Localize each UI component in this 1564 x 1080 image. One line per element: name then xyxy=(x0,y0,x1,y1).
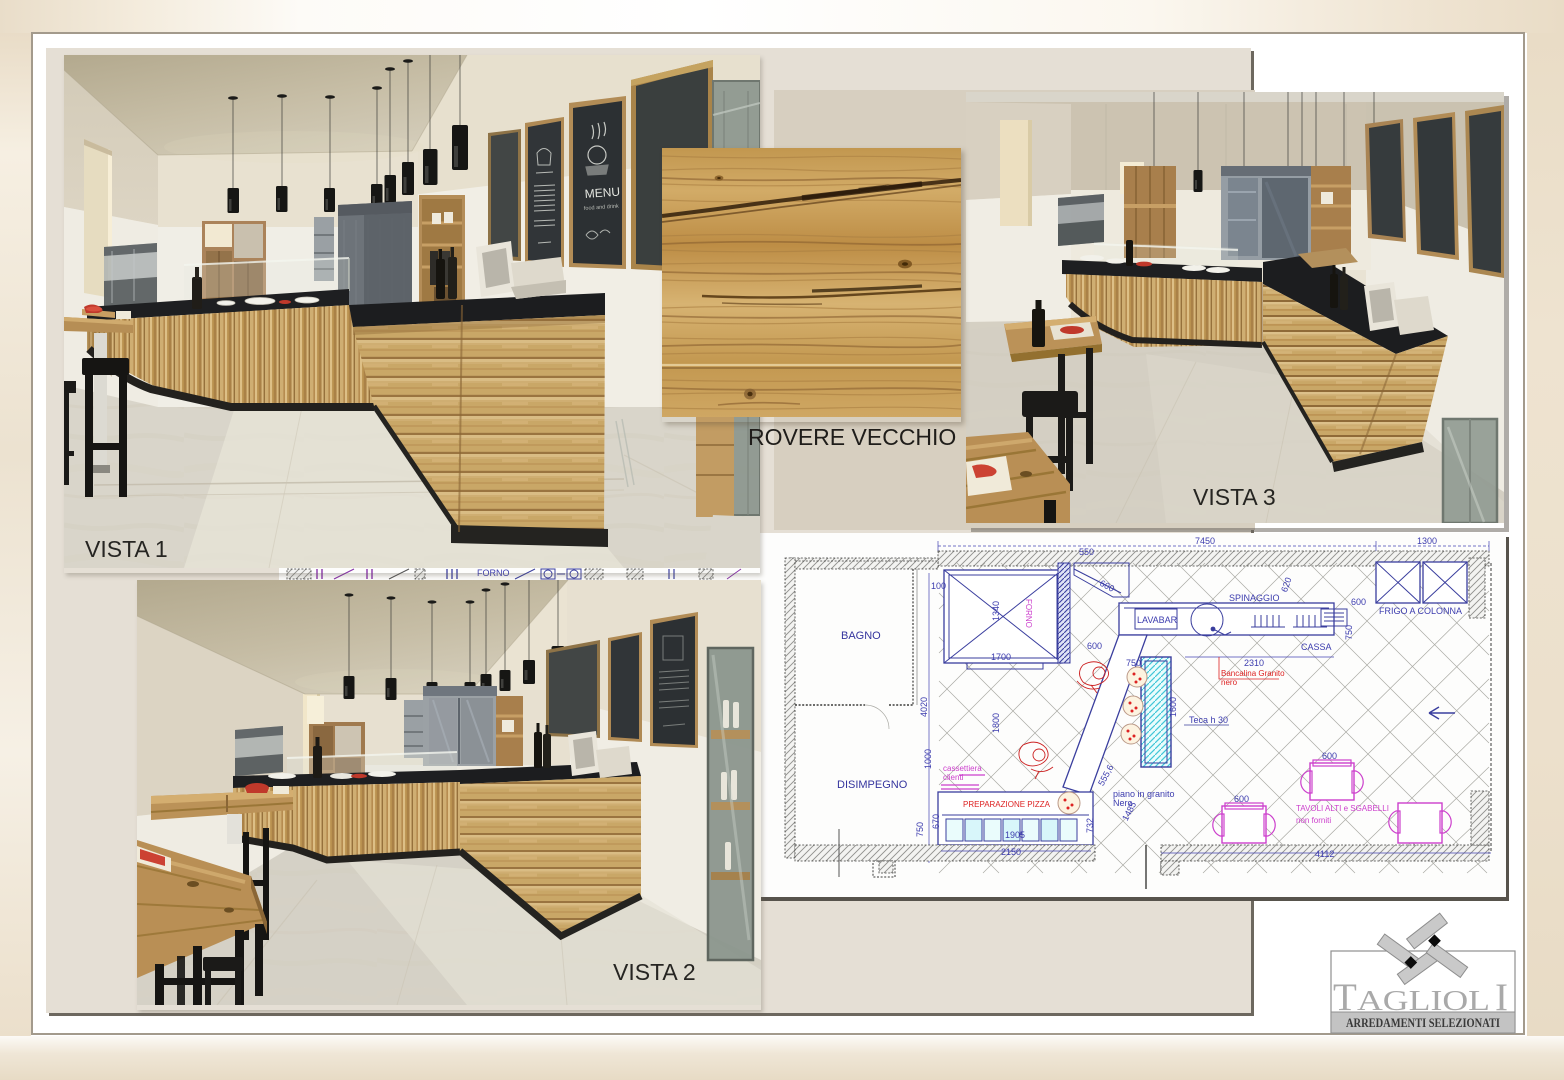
svg-text:clienti: clienti xyxy=(943,773,964,782)
svg-text:4020: 4020 xyxy=(919,697,929,717)
svg-text:750: 750 xyxy=(1344,625,1354,640)
svg-text:VISTA 2: VISTA 2 xyxy=(613,959,696,985)
svg-text:nero: nero xyxy=(1221,678,1238,687)
svg-text:750: 750 xyxy=(1126,658,1141,668)
svg-text:VISTA 1: VISTA 1 xyxy=(85,536,168,562)
svg-text:750: 750 xyxy=(915,822,925,837)
svg-text:600: 600 xyxy=(1322,751,1337,761)
svg-text:PREPARAZIONE PIZZA: PREPARAZIONE PIZZA xyxy=(963,800,1051,809)
svg-text:550: 550 xyxy=(1079,547,1094,557)
svg-text:1300: 1300 xyxy=(1417,536,1437,546)
svg-text:DISIMPEGNO: DISIMPEGNO xyxy=(837,779,908,791)
svg-text:1700: 1700 xyxy=(991,652,1011,662)
svg-text:732: 732 xyxy=(1085,818,1095,833)
svg-text:600: 600 xyxy=(1087,641,1102,651)
svg-text:600: 600 xyxy=(1234,794,1249,804)
svg-text:cassettiera: cassettiera xyxy=(943,764,982,773)
svg-text:LAVABAR: LAVABAR xyxy=(1137,615,1178,625)
svg-text:VISTA 3: VISTA 3 xyxy=(1193,484,1276,510)
svg-text:1600: 1600 xyxy=(1168,697,1178,717)
svg-text:7450: 7450 xyxy=(1195,536,1215,546)
svg-text:Bancalina Granito: Bancalina Granito xyxy=(1221,669,1285,678)
svg-text:non forniti: non forniti xyxy=(1296,816,1331,825)
svg-text:2310: 2310 xyxy=(1244,658,1264,668)
svg-text:Teca h 30: Teca h 30 xyxy=(1189,715,1228,725)
svg-text:600: 600 xyxy=(1351,597,1366,607)
svg-text:AGLIOL: AGLIOL xyxy=(1357,985,1490,1017)
svg-text:1905: 1905 xyxy=(1005,830,1025,840)
svg-text:1000: 1000 xyxy=(923,749,933,769)
svg-text:BAGNO: BAGNO xyxy=(841,630,881,642)
svg-text:I: I xyxy=(1495,976,1508,1019)
svg-text:FRIGO A COLONNA: FRIGO A COLONNA xyxy=(1379,606,1462,616)
svg-text:FORNO: FORNO xyxy=(1024,599,1033,628)
svg-text:1800: 1800 xyxy=(991,713,1001,733)
svg-text:670: 670 xyxy=(931,814,941,829)
svg-text:TAVOLI ALTI e SGABELLI: TAVOLI ALTI e SGABELLI xyxy=(1296,804,1389,813)
svg-text:4112: 4112 xyxy=(1315,849,1334,859)
svg-text:CASSA: CASSA xyxy=(1301,642,1332,652)
svg-text:1340: 1340 xyxy=(991,601,1001,621)
svg-text:ARREDAMENTI SELEZIONATI: ARREDAMENTI SELEZIONATI xyxy=(1346,1015,1500,1030)
svg-text:SPINAGGIO: SPINAGGIO xyxy=(1229,593,1280,603)
svg-text:MENU: MENU xyxy=(584,185,620,201)
svg-text:2150: 2150 xyxy=(1001,847,1021,857)
svg-text:T: T xyxy=(1333,976,1357,1019)
svg-text:100: 100 xyxy=(931,581,946,591)
svg-text:620: 620 xyxy=(1279,576,1294,594)
svg-text:600: 600 xyxy=(1098,578,1116,594)
